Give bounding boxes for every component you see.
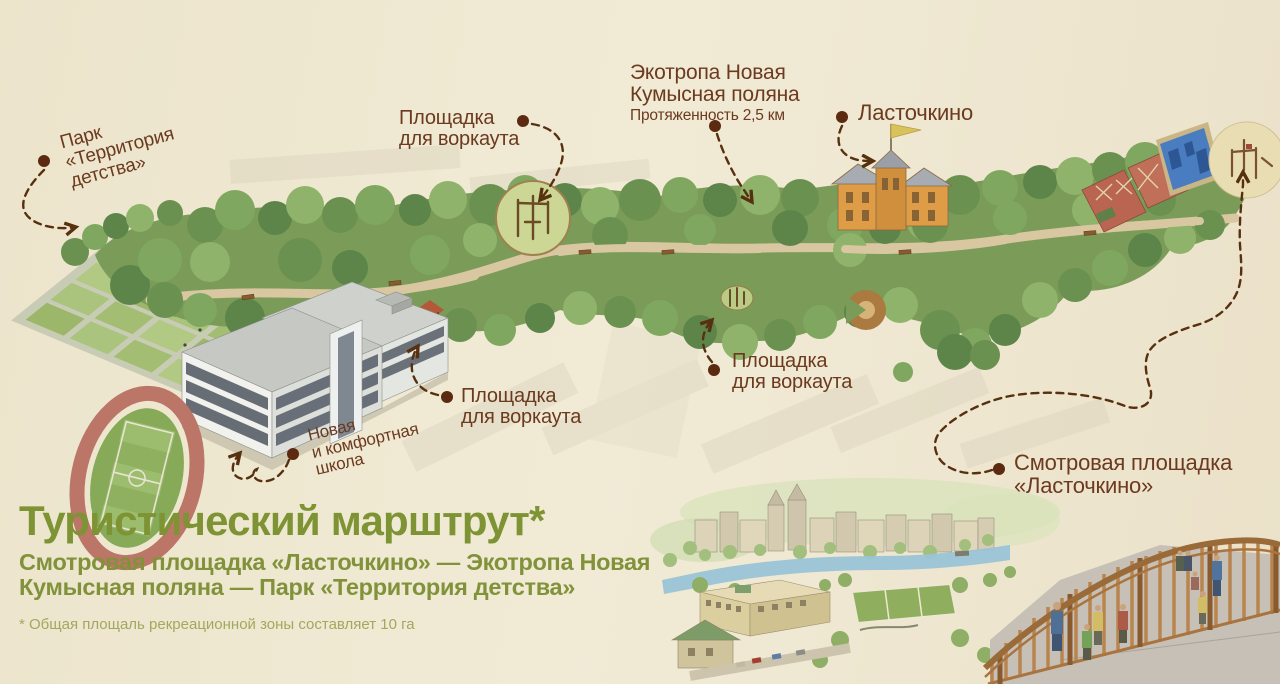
- page-title: Туристический марштрут*: [19, 500, 650, 542]
- route-marker-lastochkino: [836, 111, 848, 123]
- sports-fields: [852, 584, 956, 623]
- title-block: Туристический марштрут* Смотровая площад…: [19, 500, 650, 633]
- dashed-route-park: [23, 170, 76, 228]
- lastochkino-building: [832, 124, 952, 230]
- label-lastochkino: Ласточкино: [858, 102, 973, 125]
- dashed-route-lastochkino: [839, 126, 873, 161]
- label-viewpoint: Смотровая площадка «Ласточкино»: [1014, 452, 1232, 498]
- wooden-amphitheater: [846, 290, 886, 330]
- label-workout-top: Площадка для воркаута: [399, 108, 519, 150]
- observation-deck: [985, 540, 1280, 684]
- city-school-building: [700, 580, 830, 636]
- ecotrail-length-note: Протяженность 2,5 км: [630, 108, 800, 124]
- subtitle: Смотровая площадка «Ласточкино» — Экотро…: [19, 550, 650, 600]
- route-marker-school: [287, 448, 299, 460]
- label-workout-left: Площадка для воркаута: [461, 386, 581, 428]
- flag: [891, 124, 921, 138]
- label-workout-mid: Площадка для воркаута: [732, 351, 852, 393]
- workout-area-top: [496, 181, 570, 255]
- route-marker-park: [38, 155, 50, 167]
- footnote: * Общая площаль рекреационной зоны соста…: [19, 616, 650, 633]
- infographic-canvas: Парк «Территория детства» Площадка для в…: [0, 0, 1280, 684]
- route-marker-viewpoint: [993, 463, 1005, 475]
- label-ecotrail: Экотропа Новая Кумысная поляна Протяженн…: [630, 62, 800, 124]
- route-marker-workout-left: [441, 391, 453, 403]
- workout-area-mid: [721, 286, 753, 310]
- route-marker-workout-mid: [708, 364, 720, 376]
